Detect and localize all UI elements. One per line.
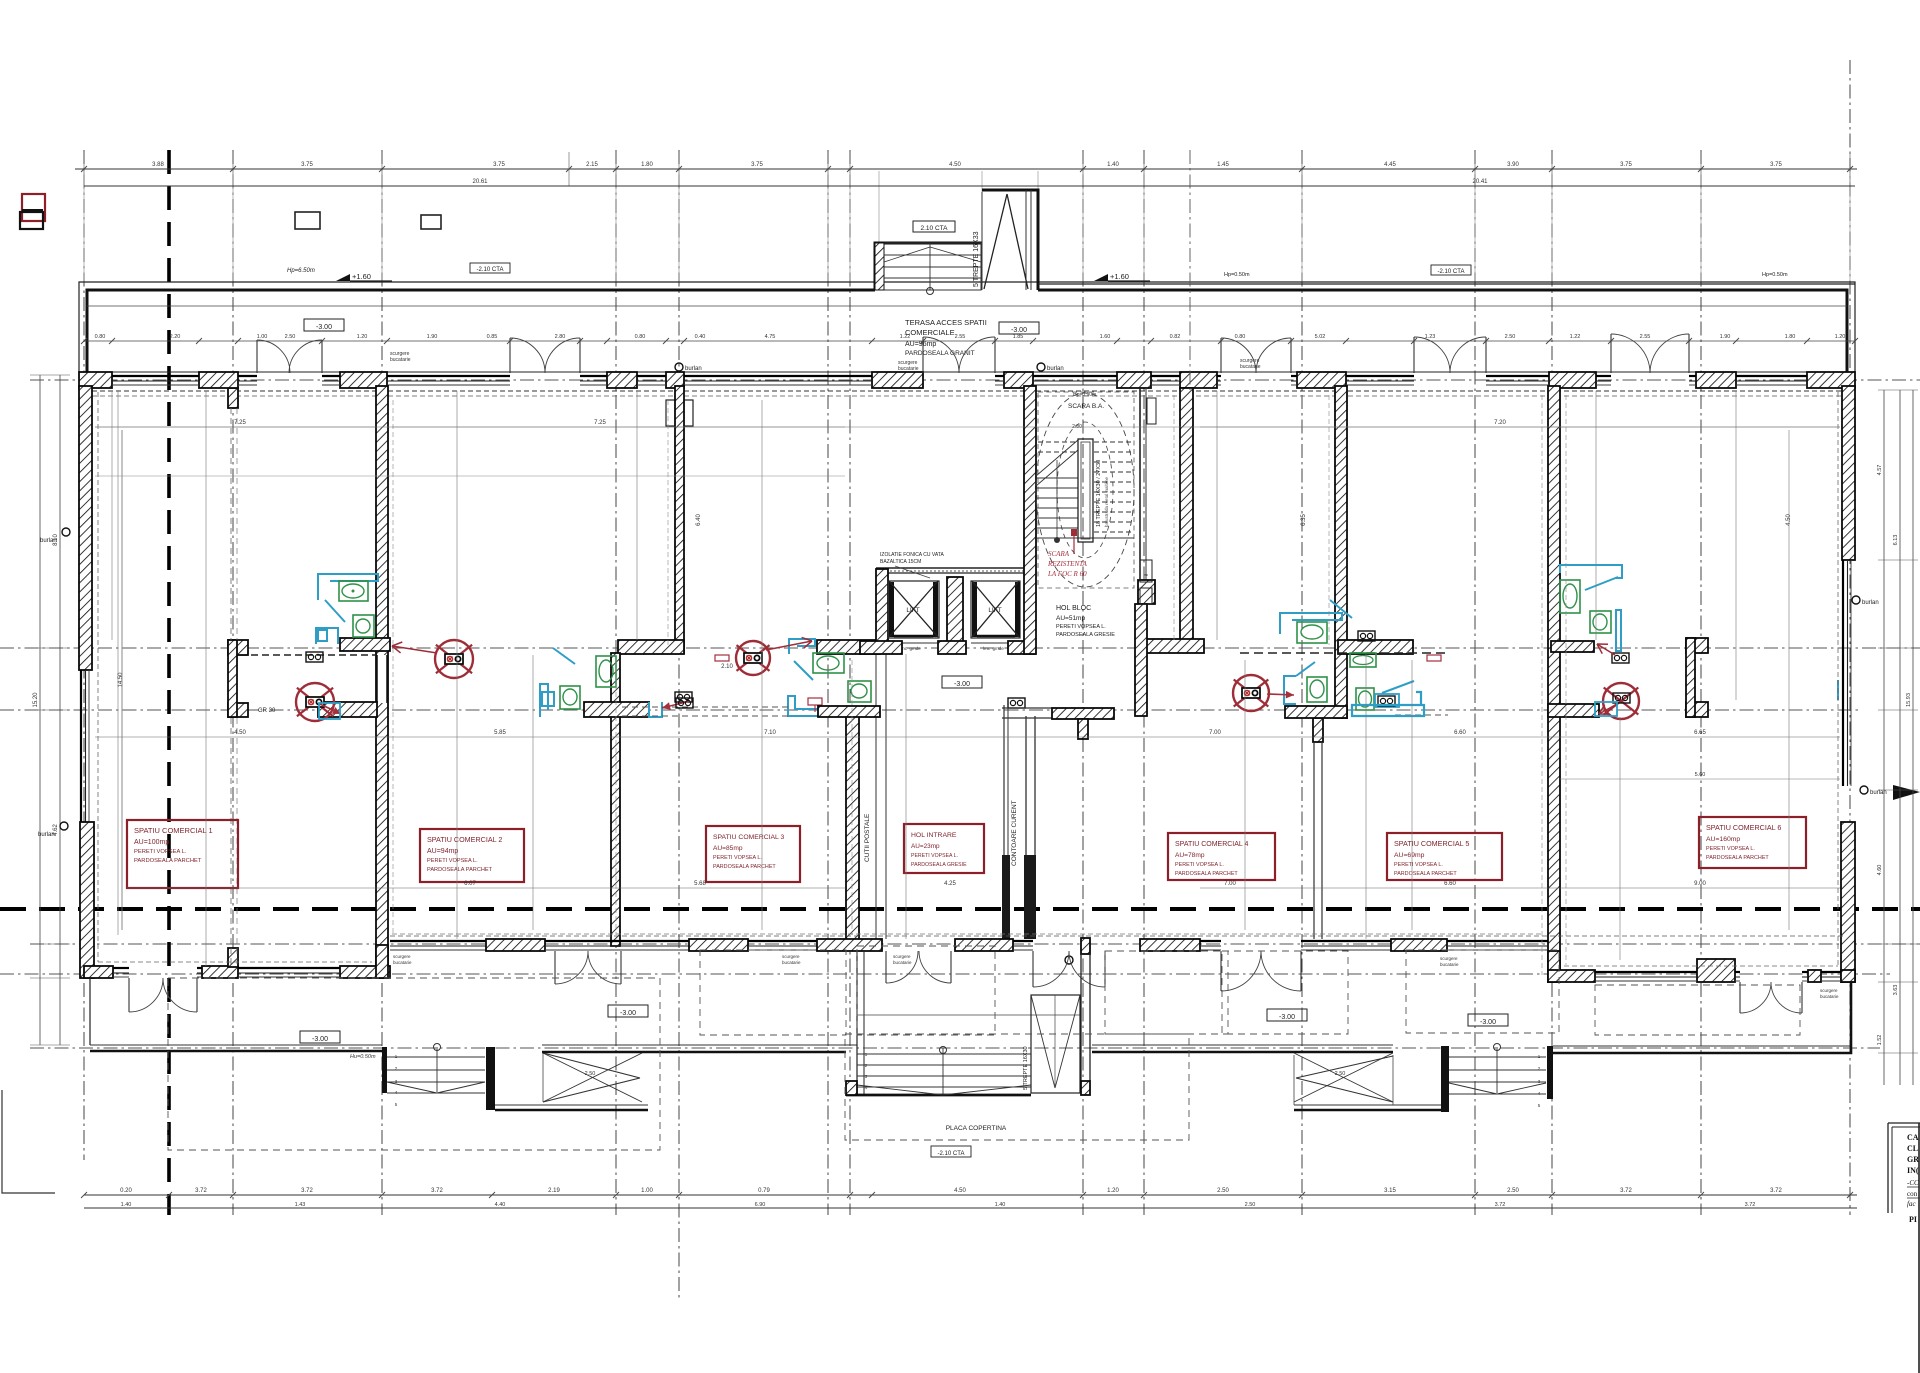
svg-text:burlan: burlan — [40, 538, 57, 544]
svg-text:0.79: 0.79 — [758, 1188, 770, 1194]
svg-text:lmc gmde: lmc gmde — [900, 646, 921, 651]
svg-text:2.55: 2.55 — [955, 334, 966, 340]
svg-text:Hu=0.50m: Hu=0.50m — [350, 1054, 376, 1060]
svg-text:2.50: 2.50 — [1245, 1202, 1256, 1208]
svg-text:AU=94mp: AU=94mp — [427, 848, 458, 855]
svg-text:7.25: 7.25 — [234, 420, 246, 426]
svg-text:CONTOARE CURENT: CONTOARE CURENT — [1011, 800, 1018, 866]
svg-text:3.72: 3.72 — [1495, 1202, 1506, 1208]
svg-text:-CC: -CC — [1907, 1179, 1919, 1187]
svg-text:burlan: burlan — [38, 832, 55, 838]
svg-text:2.55: 2.55 — [1640, 334, 1651, 340]
svg-text:4.50: 4.50 — [954, 1188, 966, 1194]
svg-text:AU=78mp: AU=78mp — [1175, 852, 1205, 859]
svg-text:5.02: 5.02 — [1315, 334, 1326, 340]
svg-text:9.00: 9.00 — [1694, 881, 1706, 887]
svg-text:7.25: 7.25 — [594, 420, 606, 426]
svg-text:-3.00: -3.00 — [316, 324, 332, 331]
svg-text:3.72: 3.72 — [431, 1188, 443, 1194]
svg-text:AU=23mp: AU=23mp — [911, 843, 940, 850]
svg-text:+1.60: +1.60 — [1110, 272, 1129, 281]
svg-text:2.10: 2.10 — [721, 664, 733, 670]
svg-text:1.40: 1.40 — [1107, 162, 1119, 168]
svg-text:3.72: 3.72 — [1770, 1188, 1782, 1194]
svg-text:-3.00: -3.00 — [1480, 1019, 1496, 1026]
svg-text:HOL INTRARE: HOL INTRARE — [911, 832, 957, 839]
svg-text:1.52: 1.52 — [1877, 1035, 1883, 1046]
svg-text:IN(: IN( — [1907, 1166, 1919, 1175]
svg-text:3.75: 3.75 — [493, 162, 505, 168]
svg-text:1.45: 1.45 — [1217, 162, 1229, 168]
svg-text:0.80: 0.80 — [635, 334, 646, 340]
svg-text:GR 30: GR 30 — [258, 708, 276, 714]
svg-text:14.50: 14.50 — [118, 672, 124, 688]
svg-text:SPATIU COMERCIAL 2: SPATIU COMERCIAL 2 — [427, 835, 502, 844]
svg-text:6.60: 6.60 — [1444, 881, 1456, 887]
svg-text:-3.00: -3.00 — [954, 681, 970, 688]
svg-text:PARDOSEALA PARCHET: PARDOSEALA PARCHET — [713, 864, 776, 870]
svg-text:-2.10 CTA: -2.10 CTA — [477, 267, 504, 273]
svg-text:PERETI VOPSEA L.: PERETI VOPSEA L. — [713, 855, 762, 861]
svg-text:PARDOSEALA PARCHET: PARDOSEALA PARCHET — [134, 858, 202, 864]
svg-text:PERETI VOPSEA L.: PERETI VOPSEA L. — [427, 858, 478, 864]
svg-text:6.35: 6.35 — [1301, 514, 1307, 526]
svg-text:1.40: 1.40 — [121, 1202, 132, 1208]
svg-text:3.15: 3.15 — [1384, 1188, 1396, 1194]
svg-text:-3.00: -3.00 — [620, 1010, 636, 1017]
svg-text:0.80: 0.80 — [1235, 334, 1246, 340]
svg-text:AU=160mp: AU=160mp — [1706, 836, 1740, 843]
svg-text:0.20: 0.20 — [120, 1188, 132, 1194]
svg-text:4.25: 4.25 — [944, 881, 956, 887]
svg-text:4.45: 4.45 — [1384, 162, 1396, 168]
svg-text:7.00: 7.00 — [1209, 730, 1221, 736]
svg-text:SPATIU COMERCIAL 6: SPATIU COMERCIAL 6 — [1706, 823, 1781, 832]
svg-text:0.80: 0.80 — [95, 334, 106, 340]
svg-text:4.50: 4.50 — [949, 162, 961, 168]
svg-text:1.43: 1.43 — [295, 1202, 306, 1208]
svg-text:1.20: 1.20 — [1107, 1188, 1119, 1194]
svg-text:1.22: 1.22 — [1570, 334, 1581, 340]
svg-text:4.57: 4.57 — [1877, 465, 1883, 476]
svg-text:BAZALTICA 15CM: BAZALTICA 15CM — [880, 559, 921, 565]
svg-text:6.60: 6.60 — [1454, 730, 1466, 736]
svg-text:Hp=0.50m: Hp=0.50m — [1224, 272, 1250, 278]
svg-text:2.50: 2.50 — [585, 1071, 596, 1077]
svg-text:PARDOSEALA PARCHET: PARDOSEALA PARCHET — [1394, 871, 1457, 877]
svg-text:5.60: 5.60 — [1695, 772, 1706, 778]
svg-text:bucatarie: bucatarie — [390, 357, 411, 363]
svg-text:PERETI VOPSEA L.: PERETI VOPSEA L. — [1056, 624, 1106, 630]
svg-text:scurgere: scurgere — [893, 954, 911, 959]
svg-text:PLACA COPERTINA: PLACA COPERTINA — [946, 1125, 1007, 1132]
svg-text:1.85: 1.85 — [1013, 334, 1024, 340]
svg-text:4.75: 4.75 — [765, 334, 776, 340]
svg-text:-2.10 CTA: -2.10 CTA — [1438, 269, 1465, 275]
svg-text:AU=85mp: AU=85mp — [713, 845, 743, 852]
svg-text:6.90: 6.90 — [755, 1202, 766, 1208]
svg-text:lmc gmde: lmc gmde — [983, 646, 1004, 651]
svg-text:PI: PI — [1909, 1215, 1917, 1224]
svg-text:balustrada metal inaltime: balustrada metal inaltime — [1104, 476, 1109, 527]
svg-text:AU=96mp: AU=96mp — [905, 341, 936, 348]
svg-text:1.20: 1.20 — [357, 334, 368, 340]
svg-text:bucatarie: bucatarie — [1240, 364, 1261, 370]
svg-text:5 TREPTE 16X30: 5 TREPTE 16X30 — [1023, 1046, 1029, 1090]
svg-text:bucatarie: bucatarie — [1440, 962, 1459, 967]
svg-text:con: con — [1907, 1190, 1918, 1198]
svg-text:PERETI VOPSEA L.: PERETI VOPSEA L. — [911, 853, 958, 859]
svg-text:1.80: 1.80 — [641, 162, 653, 168]
svg-text:1.00: 1.00 — [257, 334, 268, 340]
svg-text:SPATIU COMERCIAL 5: SPATIU COMERCIAL 5 — [1394, 839, 1469, 848]
svg-text:AU=51mp: AU=51mp — [1056, 615, 1085, 622]
svg-text:7.10: 7.10 — [764, 730, 776, 736]
svg-text:4.60: 4.60 — [1877, 865, 1883, 876]
svg-text:bucatarie: bucatarie — [782, 960, 801, 965]
svg-text:3.72: 3.72 — [195, 1188, 207, 1194]
svg-text:15.93: 15.93 — [1906, 693, 1912, 707]
svg-text:7.20: 7.20 — [1494, 420, 1506, 426]
svg-text:burlan: burlan — [1047, 366, 1064, 372]
svg-text:PARDOSEALA PARCHET: PARDOSEALA PARCHET — [1175, 871, 1238, 877]
svg-text:3.63: 3.63 — [1893, 985, 1899, 996]
svg-text:-3.00: -3.00 — [1011, 327, 1027, 334]
svg-text:2.19: 2.19 — [548, 1188, 560, 1194]
svg-text:2.10 CTA: 2.10 CTA — [921, 225, 949, 232]
svg-text:ac: ac — [1144, 572, 1148, 577]
svg-text:SPATIU COMERCIAL 1: SPATIU COMERCIAL 1 — [134, 826, 213, 835]
svg-text:PERETI VOPSEA L.: PERETI VOPSEA L. — [1706, 846, 1755, 852]
svg-text:4.40: 4.40 — [495, 1202, 506, 1208]
svg-text:6.40: 6.40 — [696, 514, 702, 526]
svg-text:3.90: 3.90 — [1507, 162, 1519, 168]
svg-text:3.75: 3.75 — [1770, 162, 1782, 168]
svg-text:scurgere: scurgere — [1820, 988, 1838, 993]
svg-text:IZOLATIE FONICA CU VATA: IZOLATIE FONICA CU VATA — [880, 552, 944, 558]
svg-text:AU=100mp: AU=100mp — [134, 839, 169, 846]
svg-text:2.50: 2.50 — [1507, 1188, 1519, 1194]
svg-text:6.13: 6.13 — [1893, 535, 1899, 546]
svg-text:7.00: 7.00 — [1224, 881, 1236, 887]
svg-text:HOL BLOC: HOL BLOC — [1056, 605, 1091, 612]
svg-text:PARDOSEALA GRESIE: PARDOSEALA GRESIE — [911, 862, 967, 868]
svg-text:SPATIU COMERCIAL 3: SPATIU COMERCIAL 3 — [713, 834, 784, 841]
svg-text:PERETI VOPSEA L.: PERETI VOPSEA L. — [134, 849, 187, 855]
svg-text:CUTII POSTALE: CUTII POSTALE — [864, 813, 871, 862]
svg-text:0.40: 0.40 — [695, 334, 706, 340]
svg-text:2.15: 2.15 — [586, 162, 598, 168]
svg-text:+1.60: +1.60 — [352, 272, 371, 281]
svg-text:CA: CA — [1907, 1133, 1919, 1142]
svg-text:1.40: 1.40 — [995, 1202, 1006, 1208]
svg-text:3.88: 3.88 — [152, 162, 164, 168]
svg-text:3.75: 3.75 — [1620, 162, 1632, 168]
svg-text:2.80: 2.80 — [555, 334, 566, 340]
svg-text:3.72: 3.72 — [1745, 1202, 1756, 1208]
svg-text:2.20: 2.20 — [170, 334, 181, 340]
svg-text:20.41: 20.41 — [1472, 179, 1488, 185]
svg-text:burlan: burlan — [1862, 600, 1879, 606]
svg-text:burlan: burlan — [1870, 790, 1887, 796]
svg-text:scurgere: scurgere — [393, 954, 411, 959]
svg-text:1.90: 1.90 — [427, 334, 438, 340]
svg-text:bucatarie: bucatarie — [893, 960, 912, 965]
svg-text:2.50: 2.50 — [1505, 334, 1516, 340]
svg-text:1.22: 1.22 — [900, 334, 911, 340]
svg-text:-2.10 CTA: -2.10 CTA — [938, 1151, 965, 1157]
svg-text:PERETI VOPSEA L.: PERETI VOPSEA L. — [1175, 862, 1224, 868]
svg-text:REZISTENTA: REZISTENTA — [1047, 560, 1087, 568]
svg-text:1.80: 1.80 — [1785, 334, 1796, 340]
svg-text:LIFT: LIFT — [906, 607, 919, 614]
svg-text:5.85: 5.85 — [494, 730, 506, 736]
svg-text:5.68: 5.68 — [694, 881, 706, 887]
svg-text:GR: GR — [1907, 1155, 1919, 1164]
svg-text:COMERCIALE: COMERCIALE — [905, 328, 955, 337]
svg-text:5 TREPTE 16X33: 5 TREPTE 16X33 — [973, 231, 980, 287]
svg-text:LIFT: LIFT — [988, 607, 1001, 614]
svg-text:15.20: 15.20 — [33, 692, 39, 708]
svg-text:scurgere: scurgere — [1440, 956, 1458, 961]
svg-text:3.75: 3.75 — [751, 162, 763, 168]
svg-text:0.85: 0.85 — [487, 334, 498, 340]
svg-text:PARDOSEALA GRESIE: PARDOSEALA GRESIE — [1056, 632, 1115, 638]
svg-text:2.50: 2.50 — [1335, 1071, 1346, 1077]
svg-text:Hp=6.50m: Hp=6.50m — [287, 268, 315, 274]
svg-text:PARDOSEALA PARCHET: PARDOSEALA PARCHET — [1706, 855, 1769, 861]
svg-text:scurgere: scurgere — [782, 954, 800, 959]
svg-text:bucatarie: bucatarie — [393, 960, 412, 965]
svg-text:PARDOSEALA PARCHET: PARDOSEALA PARCHET — [427, 867, 493, 873]
svg-text:4.50: 4.50 — [234, 730, 246, 736]
svg-text:PERETI VOPSEA L.: PERETI VOPSEA L. — [1394, 862, 1443, 868]
svg-text:18 TREPTE 16X30 / 27X30: 18 TREPTE 16X30 / 27X30 — [1096, 460, 1102, 527]
svg-text:1.20: 1.20 — [1835, 334, 1846, 340]
svg-text:3.72: 3.72 — [301, 1188, 313, 1194]
svg-text:SCARA B.A.: SCARA B.A. — [1068, 403, 1104, 410]
svg-text:20.61: 20.61 — [472, 179, 488, 185]
svg-text:SPATIU COMERCIAL 4: SPATIU COMERCIAL 4 — [1175, 841, 1248, 848]
svg-text:1.60: 1.60 — [1100, 334, 1111, 340]
svg-text:AU=69mp: AU=69mp — [1394, 852, 1425, 859]
svg-text:CL: CL — [1907, 1144, 1918, 1153]
svg-text:SCARA: SCARA — [1048, 550, 1070, 558]
svg-text:0.82: 0.82 — [1170, 334, 1181, 340]
svg-text:burlan: burlan — [685, 366, 702, 372]
svg-text:6.07: 6.07 — [464, 881, 476, 887]
svg-text:3.75: 3.75 — [301, 162, 313, 168]
svg-text:bucatarie: bucatarie — [1820, 994, 1839, 999]
svg-text:TERASA ACCES SPATII: TERASA ACCES SPATII — [905, 318, 987, 327]
svg-text:1.00: 1.00 — [641, 1188, 653, 1194]
svg-text:fac: fac — [1907, 1200, 1916, 1208]
svg-text:Hp=0.50m: Hp=0.50m — [1762, 272, 1788, 278]
svg-text:2.50: 2.50 — [285, 334, 296, 340]
svg-text:3.72: 3.72 — [1620, 1188, 1632, 1194]
svg-text:6.65: 6.65 — [1694, 730, 1706, 736]
svg-text:-3.00: -3.00 — [1279, 1014, 1295, 1021]
svg-text:1.90: 1.90 — [1720, 334, 1731, 340]
svg-text:-3.00: -3.00 — [312, 1036, 328, 1043]
svg-text:LA FOC R 60: LA FOC R 60 — [1047, 570, 1087, 578]
svg-text:Hp=0.90m: Hp=0.90m — [1073, 392, 1096, 398]
svg-text:2.50: 2.50 — [1217, 1188, 1229, 1194]
